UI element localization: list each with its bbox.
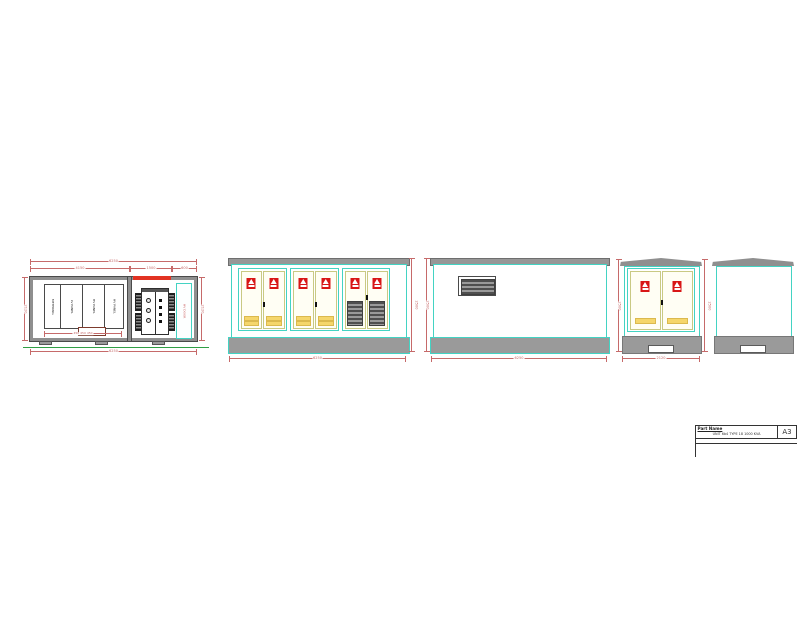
- side-a-base-notch: [648, 345, 674, 353]
- transformer-terminal-dot: [159, 320, 162, 323]
- door-louver-grille: [369, 301, 385, 326]
- plan-dim-total-top: 6250: [30, 261, 197, 262]
- door-vent-strip: [667, 318, 688, 324]
- rear-elevation-view: 2500 6250: [425, 252, 617, 370]
- rear-dim-height-label: 2500: [425, 301, 429, 310]
- plan-switchgear-cells: METERING LV PANEL HV PANEL HV PANEL: [44, 284, 124, 329]
- title-block-sheet-size: A3: [778, 426, 796, 438]
- plan-cell-4: HV PANEL: [105, 285, 123, 328]
- side-b-wall: [716, 266, 792, 338]
- plan-dim-bottom-label: 6250: [108, 350, 119, 354]
- door-handle: [315, 302, 317, 307]
- door-louver-grille: [347, 301, 363, 326]
- transformer-plan-body: [141, 288, 169, 335]
- plan-cell-4-label: HV PANEL: [113, 299, 116, 314]
- door-handle: [366, 295, 368, 300]
- door-vent-strip: [266, 321, 282, 326]
- plan-dim-top-left-label: 4150: [75, 267, 86, 271]
- plan-cell-3: HV PANEL: [83, 285, 105, 328]
- plan-dim-bottom: 6250: [30, 351, 197, 352]
- plan-base-tab: [39, 341, 52, 345]
- plan-cell-3-label: HV PANEL: [92, 299, 95, 314]
- front-panel-2-door-left: [293, 271, 315, 329]
- plan-dim-top-mid: 1500: [130, 268, 172, 269]
- plan-dim-left-label: 2120: [23, 305, 27, 314]
- plan-side-door: HV DOOR: [176, 283, 192, 339]
- title-block-left-rule: [695, 439, 696, 457]
- transformer-bushing-icon: [146, 308, 151, 313]
- transformer-bushing-icon: [146, 318, 151, 323]
- door-vent-strip: [244, 321, 260, 326]
- front-dim-height-label: 2500: [414, 301, 418, 310]
- plan-dim-left: 2120: [24, 277, 25, 341]
- title-block-partname-cell: Part Name UNIT 6b4 TYPE 18 1000 KVA: [696, 426, 778, 438]
- warning-sign-icon: [351, 278, 360, 289]
- plan-cell-1-label: METERING: [51, 299, 54, 315]
- side-a-door-left: [630, 271, 661, 330]
- title-block-part-name: UNIT 6b4 TYPE 18 1000 KVA: [696, 433, 777, 436]
- transformer-bushing-icon: [146, 298, 151, 303]
- front-panel-3-door-right: [367, 271, 388, 329]
- title-block: Part Name UNIT 6b4 TYPE 18 1000 KVA A3: [695, 425, 798, 460]
- plan-dim-top-right-label: 600: [180, 267, 189, 271]
- plan-cell-2-label: LV PANEL: [70, 300, 73, 314]
- door-vent-strip: [318, 321, 334, 326]
- front-panel-1: [238, 268, 287, 331]
- plan-centerline: [23, 347, 209, 348]
- rear-dim-height: 2500: [426, 258, 427, 352]
- plan-side-door-label: HV DOOR: [183, 304, 186, 318]
- front-dim-height: 2500: [411, 258, 412, 352]
- rear-dim-width-label: 6250: [514, 357, 525, 361]
- door-handle: [263, 302, 265, 307]
- front-panel-3-door-left: [345, 271, 366, 329]
- front-dim-width-label: 6250: [312, 357, 323, 361]
- plan-view: 6250 4150 1500 600 2120 2120 METERING LV…: [15, 252, 220, 370]
- side-b-base-notch: [740, 345, 766, 353]
- rear-dim-width: 6250: [431, 358, 607, 359]
- warning-sign-icon: [299, 278, 308, 289]
- plan-cell-1: METERING: [45, 285, 61, 328]
- rear-base-plinth: [430, 337, 610, 354]
- plan-partition-wall: [127, 277, 132, 341]
- warning-sign-icon: [269, 278, 278, 289]
- plan-hv-barrier-redbar: [133, 276, 171, 280]
- side-b-roof: [712, 258, 794, 266]
- drawing-sheet: 6250 4150 1500 600 2120 2120 METERING LV…: [0, 0, 800, 640]
- warning-sign-icon: [641, 281, 650, 292]
- warning-sign-icon: [321, 278, 330, 289]
- side-a-dim-width-label: 2120: [656, 357, 667, 361]
- door-vent-strip: [296, 321, 312, 326]
- warning-sign-icon: [247, 278, 256, 289]
- plan-dim-right-label: 2120: [200, 305, 204, 314]
- side-a-dim-left: 2500: [618, 259, 619, 352]
- plan-base-tab: [152, 341, 165, 345]
- plan-dim-cells-label: 450 450 450: [72, 332, 93, 335]
- transformer-terminal-dot: [159, 313, 162, 316]
- warning-sign-icon: [673, 281, 682, 292]
- front-elevation-view: 2500 6250: [225, 252, 420, 370]
- front-dim-width: 6250: [229, 358, 406, 359]
- side-a-panel: [627, 268, 695, 332]
- front-base-plinth: [228, 337, 410, 354]
- front-panel-1-door-left: [241, 271, 263, 329]
- title-block-box: Part Name UNIT 6b4 TYPE 18 1000 KVA A3: [695, 425, 797, 439]
- side-elevation-blank-view: [705, 252, 800, 370]
- plan-dim-cells: 450 450 450: [44, 333, 122, 334]
- plan-base-tab: [95, 341, 108, 345]
- warning-sign-icon: [373, 278, 382, 289]
- door-vent-strip: [635, 318, 656, 324]
- plan-dim-top-left: 4150: [30, 268, 130, 269]
- transformer-terminal-dot: [159, 306, 162, 309]
- transformer-top-bar: [142, 289, 168, 292]
- front-panel-1-door-right: [263, 271, 285, 329]
- side-elevation-door-view: 2500 2500 2120: [615, 252, 710, 370]
- side-a-door-right: [662, 271, 693, 330]
- front-panel-3: [342, 268, 390, 331]
- front-panel-2-door-right: [315, 271, 337, 329]
- front-panel-2: [290, 268, 339, 331]
- title-block-header: Part Name: [698, 427, 723, 432]
- rear-vent-grille: [458, 276, 496, 296]
- plan-dim-right: 2120: [201, 277, 202, 341]
- side-a-dim-width: 2120: [622, 358, 700, 359]
- rear-vent-louver-slats: [461, 279, 495, 295]
- title-block-lower-rule: [695, 443, 797, 444]
- door-handle: [661, 300, 663, 305]
- plan-dim-total-top-label: 6250: [108, 260, 119, 264]
- plan-dim-top-mid-label: 1500: [146, 267, 157, 271]
- side-a-dim-left-label: 2500: [617, 301, 621, 310]
- plan-dim-top-right: 600: [172, 268, 197, 269]
- side-a-roof: [620, 258, 702, 266]
- transformer-terminal-dot: [159, 299, 162, 302]
- plan-cell-2: LV PANEL: [61, 285, 83, 328]
